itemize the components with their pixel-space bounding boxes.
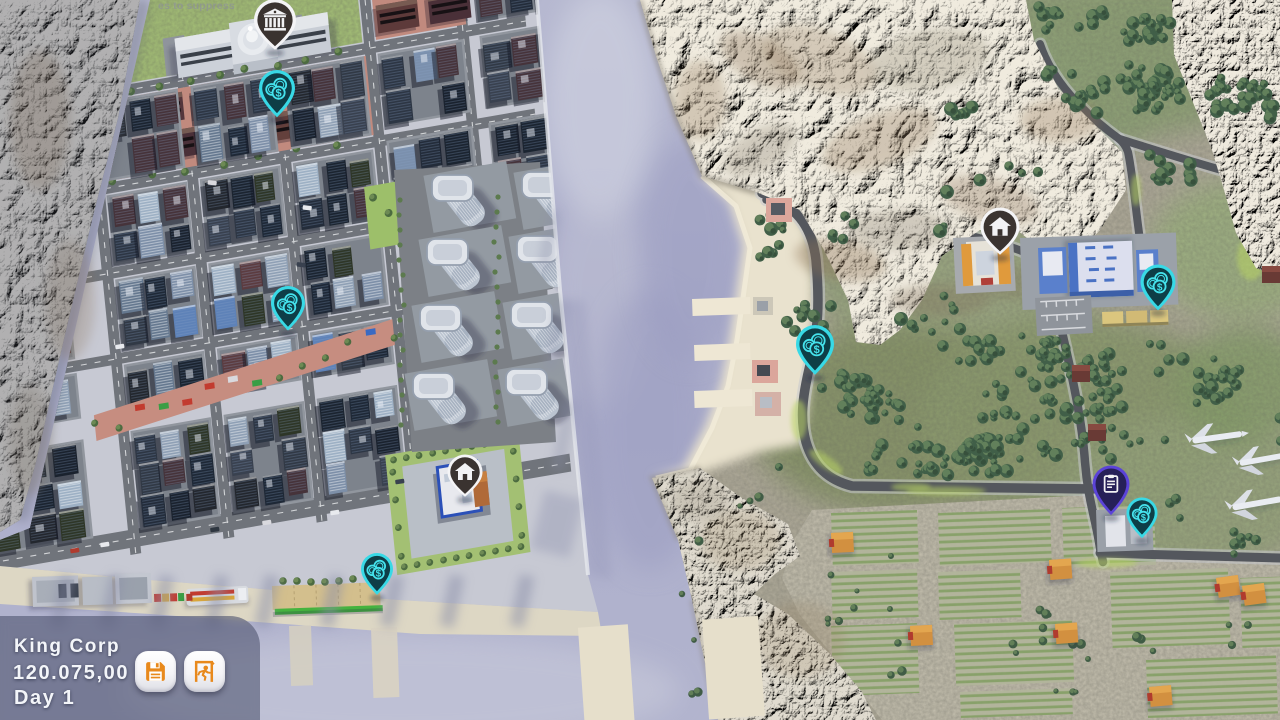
svg-text:$: $: [814, 344, 820, 356]
svg-text:$: $: [276, 88, 282, 100]
svg-text:$: $: [1157, 282, 1163, 293]
svg-text:es to suppress: es to suppress: [158, 0, 235, 12]
svg-text:$: $: [376, 569, 382, 580]
svg-text:$: $: [287, 303, 293, 314]
svg-text:$: $: [1141, 512, 1146, 522]
